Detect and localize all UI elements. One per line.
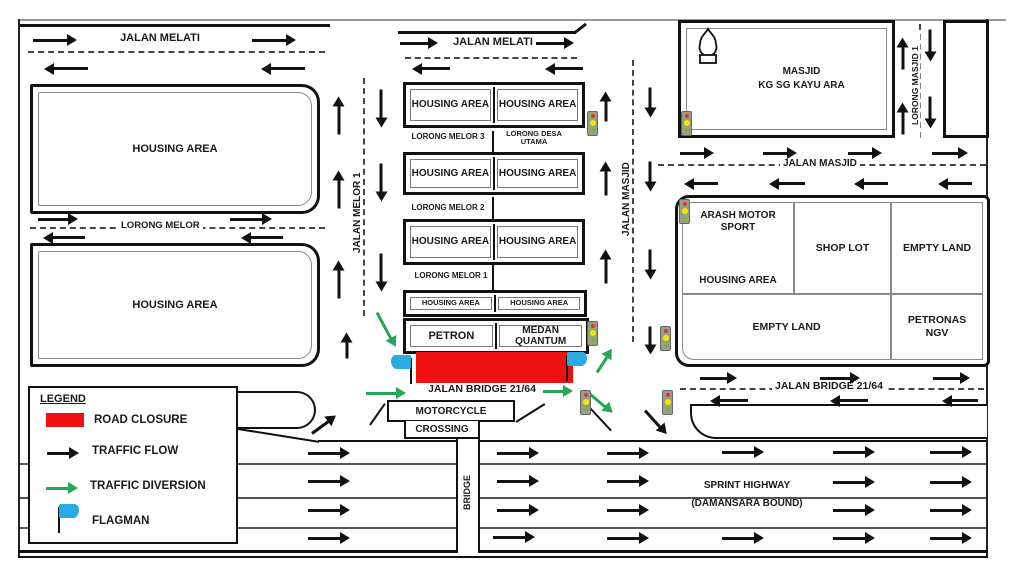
traffic-flow-arrow bbox=[902, 42, 905, 70]
jalan-melor1-centerline bbox=[363, 78, 365, 316]
traffic-flow-arrow bbox=[497, 480, 535, 483]
traffic-flow-arrow bbox=[607, 480, 645, 483]
flagman-icon bbox=[391, 355, 415, 389]
traffic-flow-arrow bbox=[308, 537, 346, 540]
traffic-flow-arrow bbox=[946, 399, 978, 402]
sprint-highway-label2: (DAMANSARA BOUND) bbox=[675, 498, 819, 509]
masjid-line1: MASJID bbox=[721, 65, 882, 79]
legend-flagman-label: FLAGMAN bbox=[92, 515, 150, 527]
masjid-label: MASJID KG SG KAYU ARA bbox=[721, 65, 882, 93]
traffic-flow-arrow bbox=[38, 218, 74, 221]
traffic-flow-arrow bbox=[338, 175, 341, 209]
map-border-bottom2 bbox=[18, 556, 988, 558]
traffic-flow-arrow bbox=[649, 88, 652, 114]
traffic-flow-arrow bbox=[245, 236, 283, 239]
housing-cell: HOUSING AREA bbox=[497, 226, 578, 258]
map-border-bottom bbox=[18, 550, 988, 553]
traffic-flow-arrow bbox=[834, 399, 868, 402]
cell-divider bbox=[494, 295, 497, 312]
traffic-diversion-arrow bbox=[366, 392, 402, 395]
traffic-flow-arrow bbox=[380, 90, 383, 124]
traffic-flow-arrow bbox=[536, 42, 570, 45]
bridge-band: BRIDGE bbox=[456, 439, 480, 553]
petron-label: PETRON bbox=[410, 325, 493, 347]
traffic-flow-arrow bbox=[338, 101, 341, 135]
traffic-flow-arrow bbox=[416, 67, 450, 70]
traffic-flow-arrow bbox=[252, 39, 292, 42]
housing-area-sw-label: HOUSING AREA bbox=[33, 299, 317, 311]
legend-title: LEGEND bbox=[40, 393, 86, 405]
medan-quantum-label: MEDAN QUANTUM bbox=[499, 325, 582, 347]
traffic-diversion-arrow bbox=[596, 352, 612, 374]
traffic-flow-arrow bbox=[605, 254, 608, 284]
traffic-flow-arrow bbox=[549, 67, 583, 70]
traffic-flow-arrow bbox=[929, 97, 932, 125]
map-border-left bbox=[18, 19, 20, 558]
medan-line1: MEDAN bbox=[522, 325, 559, 337]
arash-line2: HOUSING AREA bbox=[699, 275, 776, 287]
legend-box: LEGEND ROAD CLOSURE TRAFFIC FLOW TRAFFIC… bbox=[28, 386, 238, 544]
traffic-light-icon bbox=[587, 111, 598, 136]
traffic-flow-arrow bbox=[902, 107, 905, 135]
mosque-dome-icon bbox=[695, 27, 721, 65]
flagman-icon bbox=[563, 352, 587, 386]
traffic-flow-legend-icon bbox=[47, 452, 75, 455]
road-closure-swatch bbox=[46, 413, 84, 427]
lorong-melor3-label: LORONG MELOR 3 bbox=[407, 133, 489, 142]
housing-block-4: HOUSING AREA HOUSING AREA bbox=[403, 290, 587, 317]
traffic-flow-arrow bbox=[47, 236, 85, 239]
traffic-flow-arrow bbox=[400, 42, 434, 45]
cell-divider bbox=[493, 87, 496, 123]
traffic-flow-arrow bbox=[833, 451, 871, 454]
jalan-masjid-v-centerline bbox=[632, 60, 634, 342]
traffic-flow-arrow bbox=[380, 254, 383, 288]
traffic-flow-arrow bbox=[820, 377, 856, 380]
jalan-masjid-v-label: JALAN MASJID bbox=[621, 150, 632, 248]
traffic-flow-arrow bbox=[493, 536, 531, 539]
crossing-label: CROSSING bbox=[415, 424, 468, 435]
lorong-desa-utama-label: LORONG DESA UTAMA bbox=[500, 130, 568, 147]
traffic-flow-arrow bbox=[714, 399, 748, 402]
bridge-label: BRIDGE bbox=[462, 457, 472, 527]
petron-medan-block: PETRON MEDAN QUANTUM bbox=[403, 318, 589, 354]
flagman-legend-icon bbox=[56, 504, 80, 538]
traffic-flow-arrow bbox=[607, 537, 645, 540]
arash-motor-sport-cell: ARASH MOTOR SPORT HOUSING AREA bbox=[682, 202, 794, 294]
traffic-light-icon bbox=[587, 321, 598, 346]
housing-cell: HOUSING AREA bbox=[497, 159, 578, 188]
legend-traffic-diversion-label: TRAFFIC DIVERSION bbox=[90, 480, 206, 492]
medan-line2: QUANTUM bbox=[515, 336, 566, 348]
road-closure-bar bbox=[416, 352, 573, 383]
traffic-flow-arrow bbox=[929, 30, 932, 58]
traffic-flow-arrow bbox=[930, 537, 968, 540]
road-edge-line bbox=[398, 31, 576, 34]
arash-line1: ARASH MOTOR SPORT bbox=[686, 210, 790, 234]
traffic-flow-arrow bbox=[308, 480, 346, 483]
traffic-flow-arrow bbox=[607, 509, 645, 512]
traffic-light-icon bbox=[681, 111, 692, 136]
housing-cell: HOUSING AREA bbox=[410, 226, 491, 258]
traffic-flow-arrow bbox=[230, 218, 268, 221]
commercial-block: ARASH MOTOR SPORT HOUSING AREA SHOP LOT … bbox=[675, 195, 990, 367]
lorong-melor2-label: LORONG MELOR 2 bbox=[407, 204, 489, 213]
housing-cell: HOUSING AREA bbox=[410, 89, 491, 121]
road-edge-line bbox=[574, 23, 587, 34]
housing-cell: HOUSING AREA bbox=[410, 159, 491, 188]
cell-divider bbox=[493, 157, 496, 190]
traffic-light-icon bbox=[660, 326, 671, 351]
traffic-flow-arrow bbox=[722, 451, 760, 454]
road-edge-line bbox=[515, 403, 545, 423]
traffic-light-icon bbox=[679, 199, 690, 224]
traffic-flow-arrow bbox=[933, 377, 966, 380]
traffic-flow-arrow bbox=[605, 166, 608, 196]
traffic-flow-arrow bbox=[33, 39, 73, 42]
housing-block-1: HOUSING AREA HOUSING AREA bbox=[403, 82, 585, 128]
traffic-flow-arrow bbox=[688, 182, 718, 185]
traffic-light-icon bbox=[662, 390, 673, 415]
jalan-bridge-west-label: JALAN BRIDGE 21/64 bbox=[421, 384, 543, 396]
traffic-flow-arrow bbox=[265, 67, 305, 70]
traffic-flow-arrow bbox=[930, 509, 968, 512]
masjid-block: MASJID KG SG KAYU ARA bbox=[678, 20, 895, 138]
traffic-flow-arrow bbox=[308, 509, 346, 512]
motorcycle-label: MOTORCYCLE bbox=[416, 406, 487, 417]
jalan-melati-left-centerline bbox=[28, 51, 325, 53]
traffic-flow-arrow bbox=[607, 452, 645, 455]
road-edge-line bbox=[492, 265, 494, 290]
traffic-flow-arrow bbox=[763, 152, 793, 155]
jalan-melati-mid-centerline bbox=[405, 57, 577, 59]
housing-area-sw: HOUSING AREA bbox=[30, 243, 320, 367]
crossing-box: CROSSING bbox=[404, 421, 480, 439]
traffic-flow-arrow bbox=[833, 509, 871, 512]
road-edge-line bbox=[238, 428, 319, 443]
jalan-melor1-label: JALAN MELOR 1 bbox=[352, 150, 363, 276]
jalan-masjid-h-label: JALAN MASJID bbox=[780, 158, 860, 169]
shop-lot-cell: SHOP LOT bbox=[794, 202, 891, 294]
jalan-bridge-east-label: JALAN BRIDGE 21/64 bbox=[772, 381, 886, 393]
traffic-flow-arrow bbox=[700, 377, 733, 380]
traffic-flow-arrow bbox=[649, 327, 652, 351]
traffic-flow-arrow bbox=[380, 164, 383, 198]
traffic-diversion-arrow bbox=[376, 312, 395, 344]
sprint-highway-label1: SPRINT HIGHWAY bbox=[692, 480, 802, 491]
housing-block-2: HOUSING AREA HOUSING AREA bbox=[403, 152, 585, 195]
traffic-flow-arrow bbox=[942, 182, 972, 185]
road-edge-line bbox=[318, 440, 986, 442]
housing-cell: HOUSING AREA bbox=[497, 89, 578, 121]
housing-area-nw: HOUSING AREA bbox=[30, 84, 320, 214]
cell-divider bbox=[493, 224, 496, 260]
traffic-diversion-legend-icon bbox=[46, 487, 74, 490]
legend-road-closure-label: ROAD CLOSURE bbox=[94, 414, 187, 426]
road-edge-line bbox=[369, 403, 386, 425]
housing-block-3: HOUSING AREA HOUSING AREA bbox=[403, 219, 585, 265]
traffic-flow-arrow bbox=[649, 250, 652, 276]
housing-cell: HOUSING AREA bbox=[498, 297, 580, 310]
lorong-melor-label: LORONG MELOR bbox=[118, 221, 203, 231]
traffic-flow-arrow bbox=[311, 417, 334, 435]
traffic-flow-arrow bbox=[346, 337, 349, 359]
slip-road-band bbox=[690, 404, 987, 439]
uturn-loop bbox=[238, 391, 316, 429]
traffic-flow-arrow bbox=[930, 481, 968, 484]
motorcycle-crossing-box: MOTORCYCLE bbox=[387, 400, 515, 422]
traffic-flow-arrow bbox=[773, 182, 805, 185]
traffic-flow-arrow bbox=[649, 162, 652, 188]
road-edge-line bbox=[492, 197, 494, 220]
traffic-flow-arrow bbox=[497, 509, 535, 512]
lorong-melor1-label: LORONG MELOR 1 bbox=[410, 272, 492, 281]
masjid-line2: KG SG KAYU ARA bbox=[721, 79, 882, 93]
traffic-flow-arrow bbox=[833, 537, 871, 540]
cell-divider bbox=[495, 323, 498, 349]
traffic-flow-arrow bbox=[605, 96, 608, 122]
traffic-flow-arrow bbox=[848, 152, 878, 155]
petronas-line2: NGV bbox=[926, 327, 949, 340]
traffic-flow-arrow bbox=[930, 451, 968, 454]
traffic-flow-arrow bbox=[308, 452, 346, 455]
traffic-flow-arrow bbox=[497, 452, 535, 455]
traffic-light-icon bbox=[580, 390, 591, 415]
traffic-flow-arrow bbox=[680, 152, 710, 155]
petronas-line1: PETRONAS bbox=[908, 314, 966, 327]
traffic-flow-arrow bbox=[833, 481, 871, 484]
top-right-block bbox=[943, 20, 989, 138]
empty-land-top-cell: EMPTY LAND bbox=[891, 202, 983, 294]
traffic-flow-arrow bbox=[722, 537, 760, 540]
jalan-melati-left-label: JALAN MELATI bbox=[90, 32, 230, 44]
traffic-diversion-arrow bbox=[543, 390, 569, 393]
housing-cell: HOUSING AREA bbox=[410, 297, 492, 310]
petronas-ngv-cell: PETRONAS NGV bbox=[891, 294, 983, 360]
road-edge-line bbox=[20, 24, 330, 27]
legend-traffic-flow-label: TRAFFIC FLOW bbox=[92, 445, 178, 457]
empty-land-bottom-cell: EMPTY LAND bbox=[682, 294, 891, 360]
traffic-flow-arrow bbox=[48, 67, 88, 70]
housing-area-nw-label: HOUSING AREA bbox=[33, 143, 317, 155]
traffic-flow-arrow bbox=[858, 182, 888, 185]
traffic-diversion-map: HOUSING AREA HOUSING AREA HOUSING AREA H… bbox=[0, 0, 1024, 576]
traffic-flow-arrow bbox=[338, 265, 341, 299]
jalan-melati-mid-label: JALAN MELATI bbox=[443, 36, 543, 48]
traffic-flow-arrow bbox=[932, 152, 964, 155]
lorong-masjid1-label: LORONG MASJID 1 bbox=[911, 32, 920, 140]
